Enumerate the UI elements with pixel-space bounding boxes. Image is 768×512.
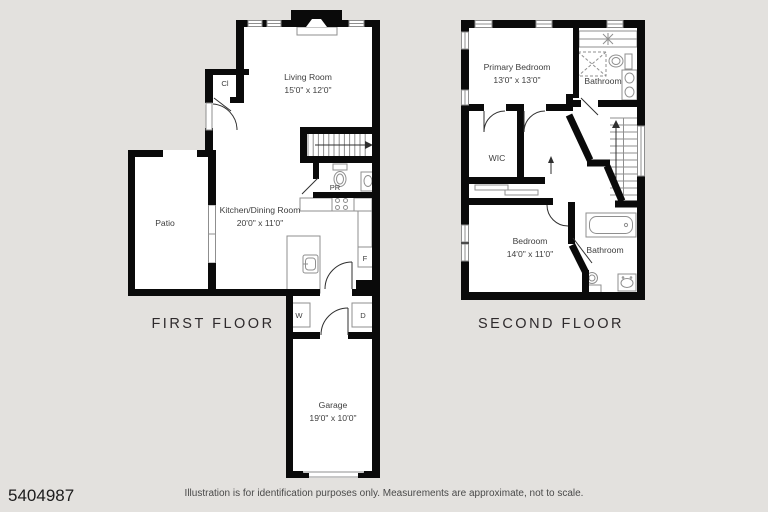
living-room-label: Living Room <box>284 72 332 82</box>
kitchen-label: Kitchen/Dining Room <box>220 205 301 215</box>
first-floor-title: FIRST FLOOR <box>103 316 323 332</box>
kitchen-dims: 20'0" x 11'0" <box>237 218 284 228</box>
garage-door-icon <box>303 472 364 477</box>
patio-sliding-door-icon <box>209 205 216 263</box>
disclaimer-text: Illustration is for identification purpo… <box>0 488 768 499</box>
bedroom-dims: 14'0" x 11'0" <box>507 249 554 259</box>
second-floor-plan: Primary Bedroom 13'0" x 13'0" Bathroom W… <box>455 14 650 309</box>
stove-icon <box>332 196 354 211</box>
dryer-label: D <box>360 311 366 320</box>
primary-bedroom-dims: 13'0" x 13'0" <box>493 75 540 85</box>
bedroom-label: Bedroom <box>513 236 548 246</box>
bathroom1-label: Bathroom <box>584 76 621 86</box>
patio-label: Patio <box>155 218 175 228</box>
garage-dims: 19'0" x 10'0" <box>309 413 356 423</box>
living-room-dims: 15'0" x 12'0" <box>284 85 331 95</box>
first-floor-plan: Living Room 15'0" x 12'0" Kitchen/Dining… <box>125 8 385 483</box>
fridge-label: F <box>363 254 368 263</box>
wic-label: WIC <box>489 153 506 163</box>
second-floor-title: SECOND FLOOR <box>441 316 661 332</box>
floorplan-canvas: Living Room 15'0" x 12'0" Kitchen/Dining… <box>0 0 768 512</box>
powder-label: PR <box>330 183 341 192</box>
bathroom2-label: Bathroom <box>586 245 623 255</box>
closet-label: Cl <box>221 79 228 88</box>
primary-bedroom-label: Primary Bedroom <box>484 62 551 72</box>
bath2-sink-icon <box>618 274 636 291</box>
garage-label: Garage <box>319 400 348 410</box>
island-sink-icon <box>287 236 320 293</box>
